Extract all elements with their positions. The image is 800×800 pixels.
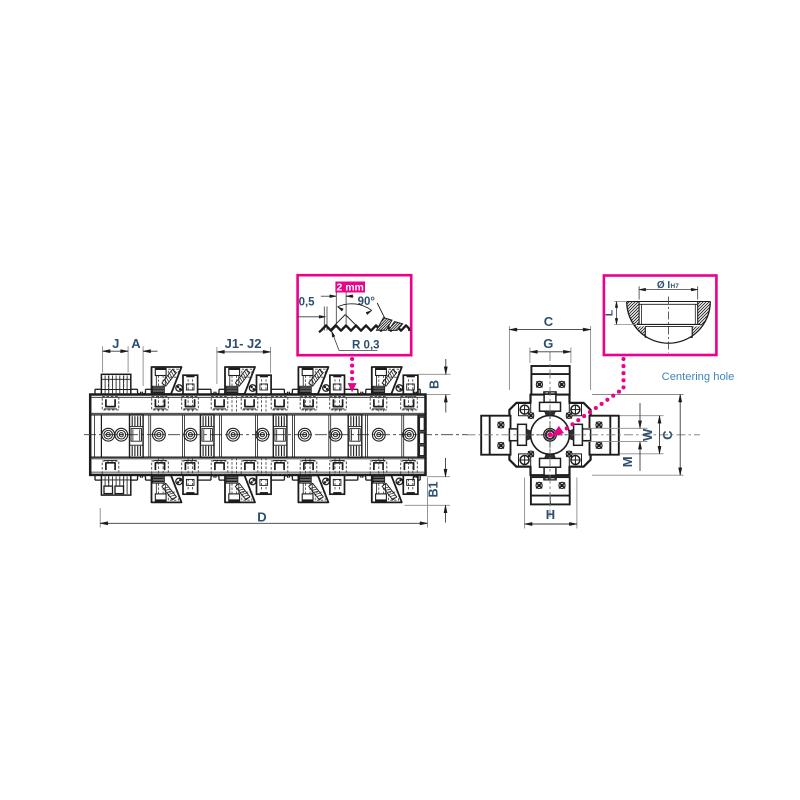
svg-text:B: B <box>427 380 441 389</box>
svg-text:2 mm: 2 mm <box>336 281 363 293</box>
svg-text:D: D <box>257 509 266 524</box>
svg-text:J: J <box>112 336 119 351</box>
svg-text:J1- J2: J1- J2 <box>225 336 262 351</box>
svg-text:M: M <box>620 456 635 467</box>
svg-text:C: C <box>660 430 675 440</box>
svg-text:Ø I: Ø I <box>657 280 671 291</box>
svg-text:G: G <box>543 336 553 351</box>
svg-text:C: C <box>544 314 554 329</box>
svg-text:H: H <box>546 507 555 522</box>
svg-text:90°: 90° <box>358 296 376 308</box>
svg-text:0,5: 0,5 <box>299 297 316 309</box>
svg-text:L: L <box>603 309 615 316</box>
svg-text:B1: B1 <box>426 481 440 497</box>
svg-text:Centering hole: Centering hole <box>662 371 735 383</box>
svg-text:A: A <box>131 336 141 351</box>
svg-text:H7: H7 <box>671 283 680 290</box>
svg-text:R 0,3: R 0,3 <box>352 339 380 351</box>
svg-text:W: W <box>640 428 655 441</box>
